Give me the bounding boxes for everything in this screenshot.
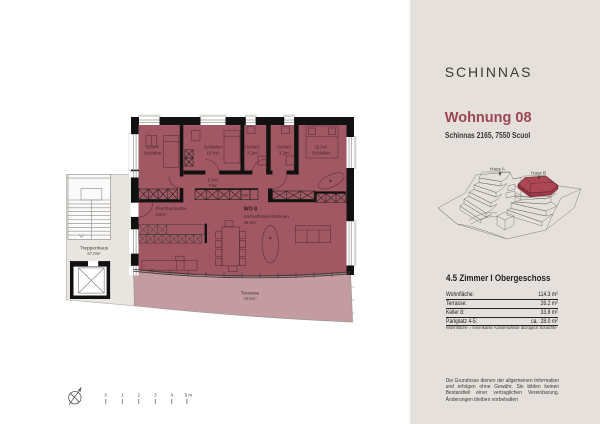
svg-text:WO 8: WO 8 (244, 207, 258, 213)
svg-text:4.2m²: 4.2m² (279, 151, 290, 156)
svg-text:Schlafen: Schlafen (204, 145, 222, 150)
svg-text:Du/WC: Du/WC (245, 145, 260, 150)
svg-text:2: 2 (138, 393, 141, 398)
svg-text:Schlafen: Schlafen (312, 151, 330, 156)
svg-text:Flur: Flur (209, 183, 217, 188)
svg-text:1: 1 (121, 393, 124, 398)
svg-text:4: 4 (171, 393, 174, 398)
svg-text:0: 0 (105, 393, 108, 398)
svg-text:Küche/Essen/Wohnen: Küche/Essen/Wohnen (244, 214, 290, 219)
svg-text:57.0m²: 57.0m² (87, 251, 101, 256)
svg-text:10.4m²: 10.4m² (206, 151, 220, 156)
svg-text:4.2m²: 4.2m² (247, 151, 258, 156)
svg-text:Schlafen: Schlafen (144, 151, 162, 156)
svg-text:16.2m²: 16.2m² (314, 145, 328, 150)
svg-text:8.5m²: 8.5m² (156, 212, 167, 217)
svg-text:8.3m²: 8.3m² (208, 178, 219, 183)
svg-text:33.8m²: 33.8m² (243, 296, 257, 301)
svg-text:5 m: 5 m (185, 393, 193, 398)
svg-text:48.9m²: 48.9m² (244, 220, 258, 225)
svg-text:3: 3 (154, 393, 157, 398)
svg-text:WM: WM (242, 194, 248, 198)
svg-text:Flur/Garderobe: Flur/Garderobe (156, 206, 188, 211)
svg-text:Du/WC: Du/WC (277, 145, 292, 150)
svg-text:Haus B: Haus B (531, 171, 546, 176)
svg-text:Haus A: Haus A (490, 167, 506, 172)
